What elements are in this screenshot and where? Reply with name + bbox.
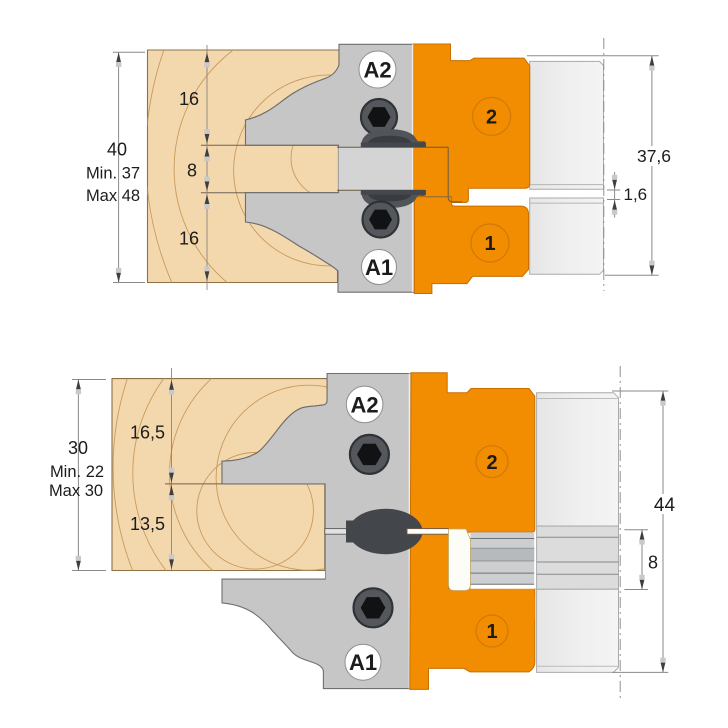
svg-text:Max 30: Max 30: [49, 482, 103, 500]
svg-text:A2: A2: [363, 58, 391, 83]
svg-text:40: 40: [107, 140, 127, 160]
svg-text:Max 48: Max 48: [86, 187, 140, 205]
svg-text:1: 1: [486, 621, 497, 643]
svg-text:16: 16: [179, 229, 199, 249]
svg-text:13,5: 13,5: [130, 514, 165, 534]
svg-text:16,5: 16,5: [130, 423, 165, 443]
svg-text:2: 2: [486, 107, 497, 129]
svg-text:44: 44: [654, 495, 676, 516]
svg-text:Min. 37: Min. 37: [86, 165, 140, 183]
svg-text:8: 8: [187, 161, 197, 181]
svg-text:A2: A2: [351, 392, 379, 417]
svg-text:A1: A1: [349, 650, 377, 675]
svg-text:Min. 22: Min. 22: [50, 463, 104, 481]
svg-text:1: 1: [484, 233, 495, 255]
svg-text:1,6: 1,6: [624, 185, 648, 204]
svg-text:30: 30: [68, 438, 88, 458]
svg-text:A1: A1: [365, 255, 393, 280]
svg-text:37,6: 37,6: [637, 146, 671, 166]
svg-text:16: 16: [179, 89, 199, 109]
svg-text:2: 2: [486, 452, 497, 474]
svg-text:8: 8: [648, 553, 658, 573]
